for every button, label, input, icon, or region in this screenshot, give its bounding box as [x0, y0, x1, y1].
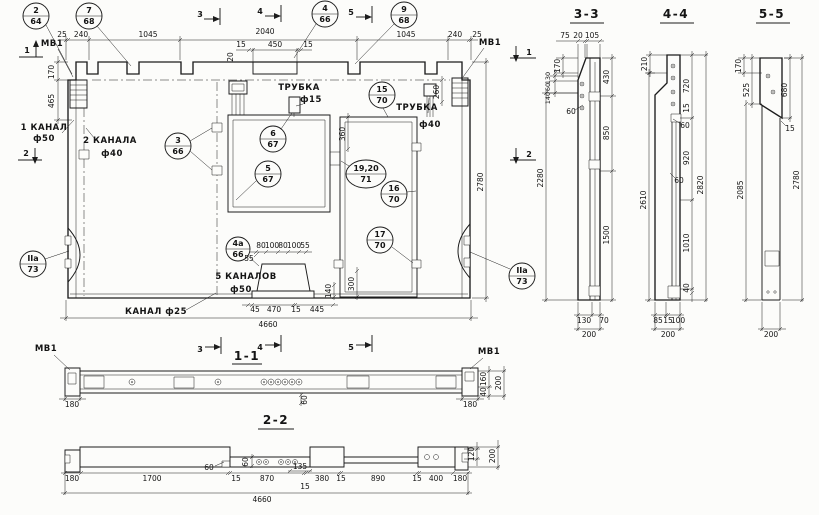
dim: 300	[347, 277, 356, 292]
callout-num: 19,20	[353, 164, 379, 173]
dim: 210	[640, 57, 649, 72]
callout-sheet: 70	[374, 241, 386, 250]
callout-sheet: 71	[360, 175, 372, 184]
mark-label: 3	[197, 345, 203, 354]
dim: 15	[291, 305, 301, 314]
dim: 60	[566, 107, 576, 116]
dim: 200	[582, 330, 597, 339]
dim: 160	[479, 372, 488, 387]
window-connector	[330, 152, 340, 165]
mark-2-left: 2	[18, 148, 42, 164]
drawing-sheet: { "callouts": [ {"num":"2","sheet":"64"}…	[0, 0, 819, 515]
callout-num: 16	[388, 184, 400, 193]
dim: 240	[74, 30, 89, 39]
drawing-canvas: 25 240 1045 2040 1045 240 25 15 450 15 2…	[0, 0, 819, 515]
dim: 130	[544, 72, 552, 84]
dim: 170	[734, 59, 743, 74]
section-3-3: 3-3 75 20 105 170 130 60 140 60 2280 430…	[536, 7, 616, 339]
label-mv1-11-right: МВ1	[478, 347, 500, 357]
dim: 135	[293, 462, 308, 471]
view-title-3-3: 3-3	[574, 7, 600, 21]
callout-2a-73-right: IIа 73	[470, 252, 535, 289]
label-canal1: 1 КАНАЛ	[21, 123, 68, 133]
dim: 85	[653, 316, 663, 325]
dim: 15	[300, 482, 310, 491]
dim: 680	[780, 83, 789, 98]
label-canal25: КАНАЛ ф25	[125, 307, 187, 317]
callout-sheet: 70	[388, 195, 400, 204]
dim: 2780	[476, 172, 485, 191]
mark-label: 2	[526, 150, 532, 159]
mark-label: 1	[24, 46, 30, 55]
dim: 180	[65, 400, 80, 409]
mark-4-bottom: 4	[257, 335, 281, 352]
dim: 1700	[142, 474, 161, 483]
dim: 240	[448, 30, 463, 39]
dim: 180	[453, 474, 468, 483]
embed-stack	[229, 81, 247, 115]
mv1-anchor-left	[70, 80, 87, 108]
callout-sheet: 73	[516, 277, 527, 286]
dim: 470	[267, 305, 282, 314]
dim: 40	[682, 283, 691, 293]
dim: 430	[602, 70, 611, 85]
dim: 100	[671, 316, 686, 325]
anchor-rib-band	[253, 62, 297, 74]
label-mv1-left: МВ1	[41, 39, 63, 49]
mark-5-top: 5	[348, 6, 372, 23]
mv1-anchor-right	[452, 78, 468, 106]
dim: 400	[429, 474, 444, 483]
dim: 2040	[255, 27, 274, 36]
dim: 60	[680, 121, 690, 130]
dim: 105	[585, 31, 600, 40]
callout-num: 9	[401, 5, 407, 14]
dim: 465	[47, 94, 56, 109]
dim: 60	[300, 395, 309, 405]
callout-4-66: 4 66	[294, 1, 338, 58]
label-tube15: ТРУБКА	[278, 83, 320, 93]
mark-4-top: 4	[257, 5, 281, 22]
mark-2-right: 2	[510, 148, 536, 164]
dim: 870	[260, 474, 275, 483]
label-canal5: 5 КАНАЛОВ	[215, 272, 276, 282]
section-1-1: 1-1 МВ1 МВ1 180 180 60 160 200 40	[35, 344, 506, 409]
label-mv1-11-left: МВ1	[35, 344, 57, 354]
label-canal2: 2 КАНАЛА	[83, 136, 137, 146]
mark-label: 1	[526, 48, 532, 57]
dim: 20	[573, 31, 583, 40]
callout-15-70: 15 70	[369, 82, 395, 117]
dim: 75	[560, 31, 570, 40]
dim: 70	[599, 316, 609, 325]
callout-num: 17	[374, 230, 385, 239]
dim: 15	[412, 474, 422, 483]
dim: 720	[682, 79, 691, 94]
dim: 180	[463, 400, 478, 409]
section-marks: 3 4 5 1 2 1 2 3	[18, 5, 536, 354]
dim: 445	[310, 305, 325, 314]
dim: 15	[336, 474, 346, 483]
dim: 15	[785, 124, 795, 133]
dim: 380	[315, 474, 330, 483]
label-canal1-dia: ф50	[33, 134, 55, 144]
dim: 2820	[696, 175, 705, 194]
callout-num: 15	[376, 85, 388, 94]
callout-sheet: 67	[262, 175, 273, 184]
callout-num: IIа	[516, 266, 527, 275]
dim: 15	[236, 40, 246, 49]
dim: 100	[265, 241, 280, 250]
callout-num: 3	[175, 136, 181, 145]
callout-17-70: 17 70	[367, 227, 413, 263]
callout-16-70: 16 70	[381, 181, 416, 207]
callout-sheet: 66	[172, 147, 184, 156]
dim: 120	[467, 447, 476, 462]
section-5-5: 5-5 170 525 2085 680 15 2780 200	[734, 7, 804, 339]
dim: 2610	[639, 190, 648, 209]
callout-num: 5	[265, 164, 271, 173]
dim: 60	[544, 83, 552, 91]
dim: 920	[682, 151, 691, 166]
callout-6-67: 6 67	[260, 113, 292, 152]
dim: 200	[764, 330, 779, 339]
window-right	[340, 117, 417, 297]
mark-label: 4	[257, 7, 263, 16]
dim: 1045	[138, 30, 157, 39]
dim: 4660	[252, 495, 271, 504]
dim: 360	[338, 127, 347, 142]
view-title-4-4: 4-4	[663, 7, 689, 21]
mark-3-bottom: 3	[197, 337, 221, 354]
dim: 170	[553, 59, 562, 74]
callout-sheet: 66	[232, 250, 244, 259]
dim: 15	[682, 103, 691, 113]
dim: 15	[231, 474, 241, 483]
callout-num: 4	[322, 4, 328, 13]
callout-num: 2	[33, 6, 39, 15]
callout-num: 6	[270, 129, 276, 138]
callout-sheet: 68	[83, 17, 95, 26]
dim: 890	[371, 474, 386, 483]
dim: 260	[432, 85, 441, 100]
view-title-5-5: 5-5	[759, 7, 785, 21]
mark-5-bottom: 5	[348, 335, 372, 352]
callout-sheet: 73	[27, 265, 38, 274]
dim: 170	[47, 65, 56, 80]
callout-sheet: 67	[267, 140, 278, 149]
dims-1-1: 180 180 60 160 200 40	[59, 366, 506, 409]
dim: 1010	[682, 233, 691, 252]
mark-3-top: 3	[197, 8, 220, 25]
dim: 200	[661, 330, 676, 339]
callout-3-66: 3 66	[165, 128, 212, 170]
label-mv1-right: МВ1	[479, 38, 501, 48]
callout-5-67: 5 67	[236, 161, 281, 200]
dim: 45	[250, 305, 260, 314]
callout-4a-66: 4а 66	[226, 237, 259, 266]
mark-label: 5	[348, 8, 354, 17]
callout-2a-73-left: IIа 73	[20, 251, 69, 277]
mark-label: 5	[348, 343, 354, 352]
dim: 525	[742, 83, 751, 98]
label-tube40-dia: ф40	[419, 120, 441, 130]
dim: 200	[494, 376, 503, 391]
mark-1-left: 1	[19, 40, 43, 57]
callout-19-20-71: 19,20 71	[341, 160, 386, 188]
dim: 55	[300, 241, 310, 250]
dim: 20	[226, 52, 235, 62]
dim: 60	[674, 176, 684, 185]
dims-3-3: 75 20 105 170 130 60 140 60 2280 430 850…	[536, 31, 616, 339]
label-tube15-dia: ф15	[300, 95, 322, 105]
dim: 60	[204, 463, 214, 472]
dim: 130	[577, 316, 592, 325]
dim: 850	[602, 126, 611, 141]
view-title-1-1: 1-1	[234, 349, 260, 363]
dim: 1045	[396, 30, 415, 39]
window-left	[228, 115, 330, 212]
label-canal5-dia: ф50	[230, 285, 252, 295]
lifting-loop-left	[65, 228, 80, 282]
callout-num: 7	[86, 6, 92, 15]
section-2-2: 2-2 180 1700 15 870 380 15 890 15 400 18…	[61, 413, 500, 504]
lifting-loop-right	[458, 224, 470, 278]
tube-f15	[289, 97, 300, 117]
channel-lines	[79, 82, 222, 296]
dims-5-5: 170 525 2085 680 15 2780 200	[734, 54, 804, 339]
mark-label: 3	[197, 10, 203, 19]
label-tube40: ТРУБКА	[396, 103, 438, 113]
dim: 25	[57, 30, 67, 39]
mark-1-right: 1	[510, 46, 536, 62]
label-canal2-dia: ф40	[101, 149, 123, 159]
callout-sheet: 70	[376, 96, 388, 105]
callout-sheet: 68	[398, 16, 410, 25]
dims-2-2: 180 1700 15 870 380 15 890 15 400 180 60…	[61, 440, 500, 504]
callout-sheet: 66	[319, 15, 331, 24]
plan-view: 25 240 1045 2040 1045 240 25 15 450 15 2…	[18, 1, 536, 354]
dim: 2085	[736, 180, 745, 199]
callout-num: IIа	[27, 254, 38, 263]
dim: 2280	[536, 168, 545, 187]
dim: 2780	[792, 170, 801, 189]
dim: 450	[268, 40, 283, 49]
dim: 180	[65, 474, 80, 483]
dim: 60	[241, 457, 250, 467]
dim: 100	[287, 241, 302, 250]
dim: 4660	[258, 320, 277, 329]
section-4-4: 4-4 210 720 15 920 2820 1010 40 60 60 26…	[639, 7, 708, 339]
dim: 40	[479, 387, 488, 397]
view-title-2-2: 2-2	[263, 413, 289, 427]
dim: 200	[488, 449, 497, 464]
mark-label: 2	[23, 149, 29, 158]
callout-num: 4а	[233, 239, 244, 248]
callout-sheet: 64	[30, 17, 42, 26]
channel-holes-1-1	[129, 379, 302, 385]
dim: 140	[324, 284, 333, 299]
dim: 1500	[602, 225, 611, 244]
